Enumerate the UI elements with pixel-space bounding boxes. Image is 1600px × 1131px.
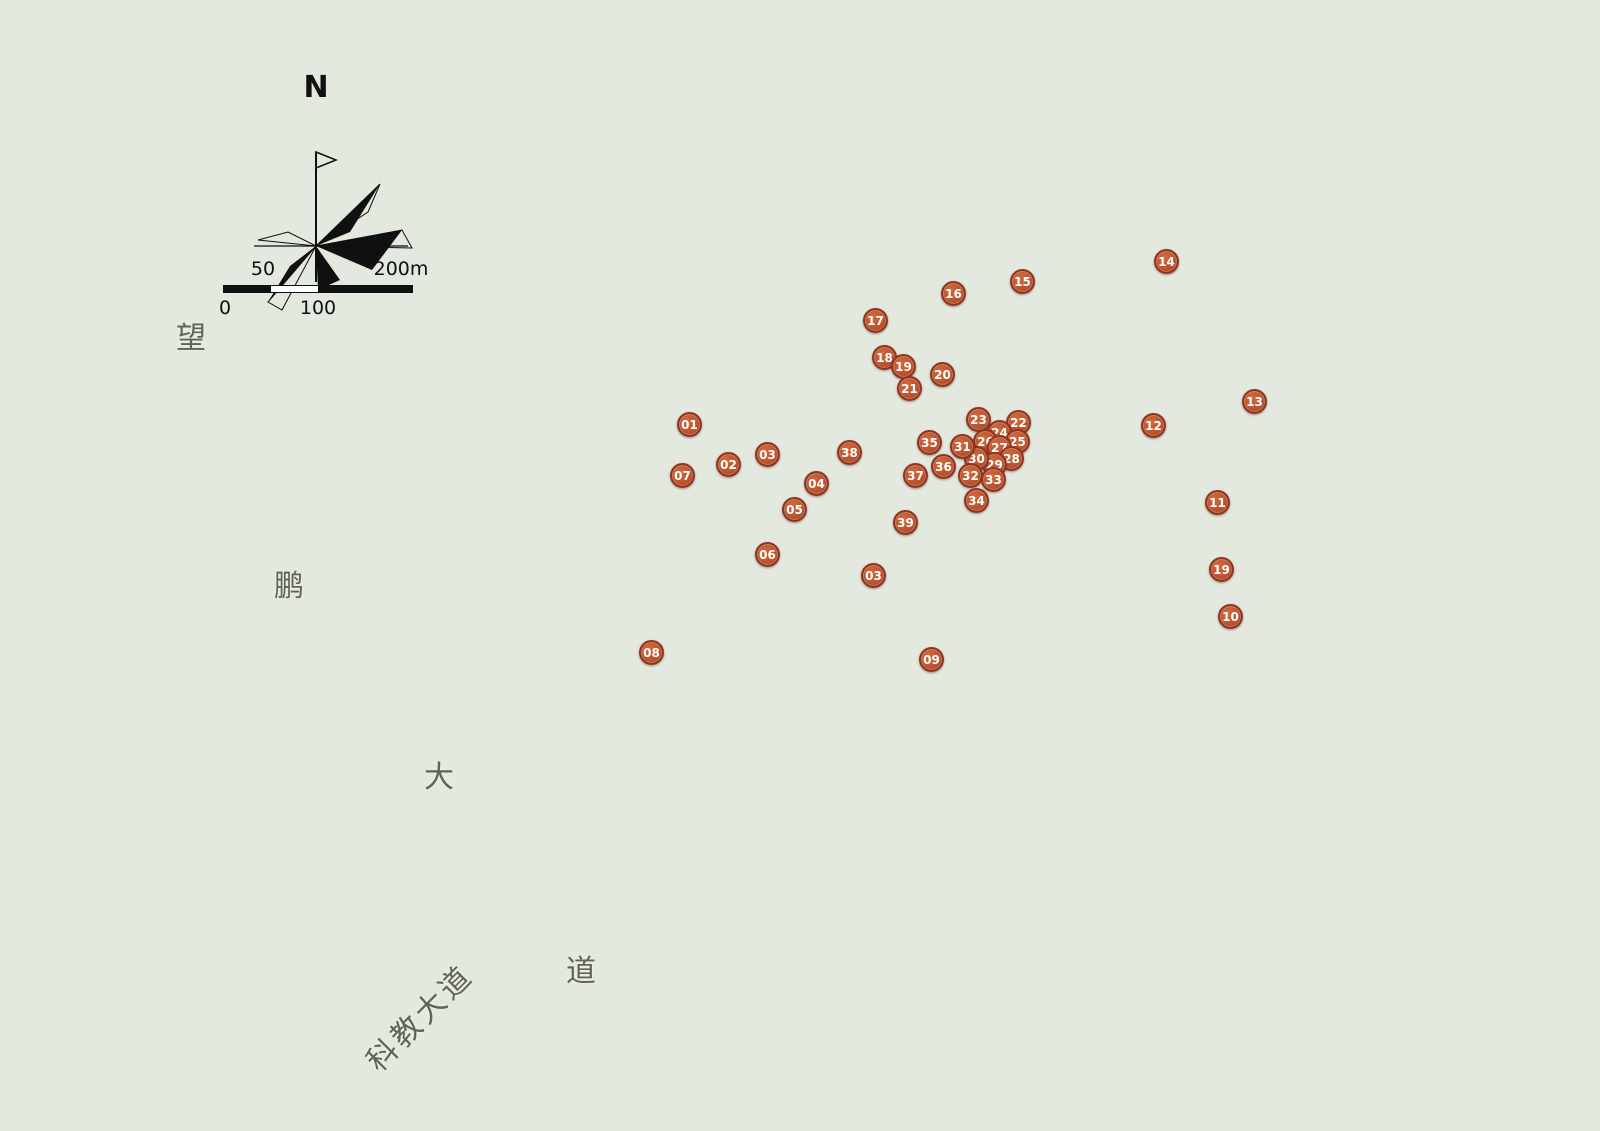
map-marker-15: 15 — [1010, 269, 1035, 294]
masterplan-canvas: N 50 200m 0 100 — [0, 0, 1600, 1131]
map-marker-06: 06 — [755, 542, 780, 567]
scale-seg-3 — [318, 286, 412, 292]
map-marker-number: 31 — [954, 441, 971, 453]
scale-seg-2 — [271, 286, 319, 292]
map-marker-number: 36 — [935, 461, 952, 473]
map-marker-number: 12 — [1145, 420, 1162, 432]
map-marker-21: 21 — [897, 376, 922, 401]
map-marker-number: 33 — [985, 474, 1002, 486]
road-label-da: 大 — [424, 752, 458, 796]
scale-label-0: 0 — [219, 297, 231, 319]
map-marker-number: 23 — [970, 414, 987, 426]
map-marker-08: 08 — [639, 640, 664, 665]
map-marker-10: 10 — [1218, 604, 1243, 629]
map-marker-number: 22 — [1010, 417, 1027, 429]
map-marker-number: 04 — [808, 478, 825, 490]
map-marker-16: 16 — [941, 281, 966, 306]
map-marker-number: 07 — [674, 470, 691, 482]
map-marker-number: 34 — [968, 495, 985, 507]
map-marker-number: 03 — [759, 449, 776, 461]
map-marker-number: 06 — [759, 549, 776, 561]
scale-label-50: 50 — [251, 258, 275, 280]
map-marker-number: 39 — [897, 517, 914, 529]
map-marker-number: 32 — [962, 470, 979, 482]
map-marker-31: 31 — [950, 434, 975, 459]
map-marker-number: 08 — [643, 647, 660, 659]
map-marker-number: 18 — [876, 352, 893, 364]
map-marker-number: 11 — [1209, 497, 1226, 509]
road-label-dao: 道 — [566, 946, 600, 990]
scale-label-100: 100 — [300, 297, 336, 319]
map-marker-34: 34 — [964, 488, 989, 513]
map-marker-19: 19 — [891, 354, 916, 379]
map-marker-09: 09 — [919, 647, 944, 672]
map-marker-19: 19 — [1209, 557, 1234, 582]
map-marker-number: 38 — [841, 447, 858, 459]
map-marker-number: 17 — [867, 315, 884, 327]
map-marker-14: 14 — [1154, 249, 1179, 274]
map-marker-36: 36 — [931, 454, 956, 479]
compass-north-label: N — [303, 70, 328, 105]
map-marker-03: 03 — [861, 563, 886, 588]
map-marker-number: 20 — [934, 369, 951, 381]
map-marker-01: 01 — [677, 412, 702, 437]
road-label-peng: 鹏 — [274, 561, 308, 605]
scale-bar: 50 200m 0 100 — [205, 258, 445, 320]
map-marker-35: 35 — [917, 430, 942, 455]
map-marker-number: 05 — [786, 504, 803, 516]
map-marker-12: 12 — [1141, 413, 1166, 438]
map-marker-03: 03 — [755, 442, 780, 467]
map-marker-number: 10 — [1222, 611, 1239, 623]
map-marker-39: 39 — [893, 510, 918, 535]
map-marker-33: 33 — [981, 467, 1006, 492]
map-marker-13: 13 — [1242, 389, 1267, 414]
map-marker-37: 37 — [903, 463, 928, 488]
map-marker-number: 01 — [681, 419, 698, 431]
map-marker-number: 35 — [921, 437, 938, 449]
map-marker-38: 38 — [837, 440, 862, 465]
scale-bar-rule — [223, 285, 413, 293]
map-marker-11: 11 — [1205, 490, 1230, 515]
map-marker-number: 02 — [720, 459, 737, 471]
map-marker-number: 14 — [1158, 256, 1175, 268]
map-marker-04: 04 — [804, 471, 829, 496]
map-marker-number: 37 — [907, 470, 924, 482]
map-marker-number: 19 — [895, 361, 912, 373]
map-marker-number: 03 — [865, 570, 882, 582]
map-marker-number: 09 — [923, 654, 940, 666]
map-marker-32: 32 — [958, 463, 983, 488]
map-marker-20: 20 — [930, 362, 955, 387]
map-marker-number: 19 — [1213, 564, 1230, 576]
map-marker-05: 05 — [782, 497, 807, 522]
scale-label-200m: 200m — [374, 258, 429, 280]
map-marker-number: 21 — [901, 383, 918, 395]
map-marker-number: 16 — [945, 288, 962, 300]
map-marker-number: 13 — [1246, 396, 1263, 408]
map-marker-number: 15 — [1014, 276, 1031, 288]
map-marker-07: 07 — [670, 463, 695, 488]
map-marker-17: 17 — [863, 308, 888, 333]
map-marker-02: 02 — [716, 452, 741, 477]
scale-seg-1 — [224, 286, 271, 292]
